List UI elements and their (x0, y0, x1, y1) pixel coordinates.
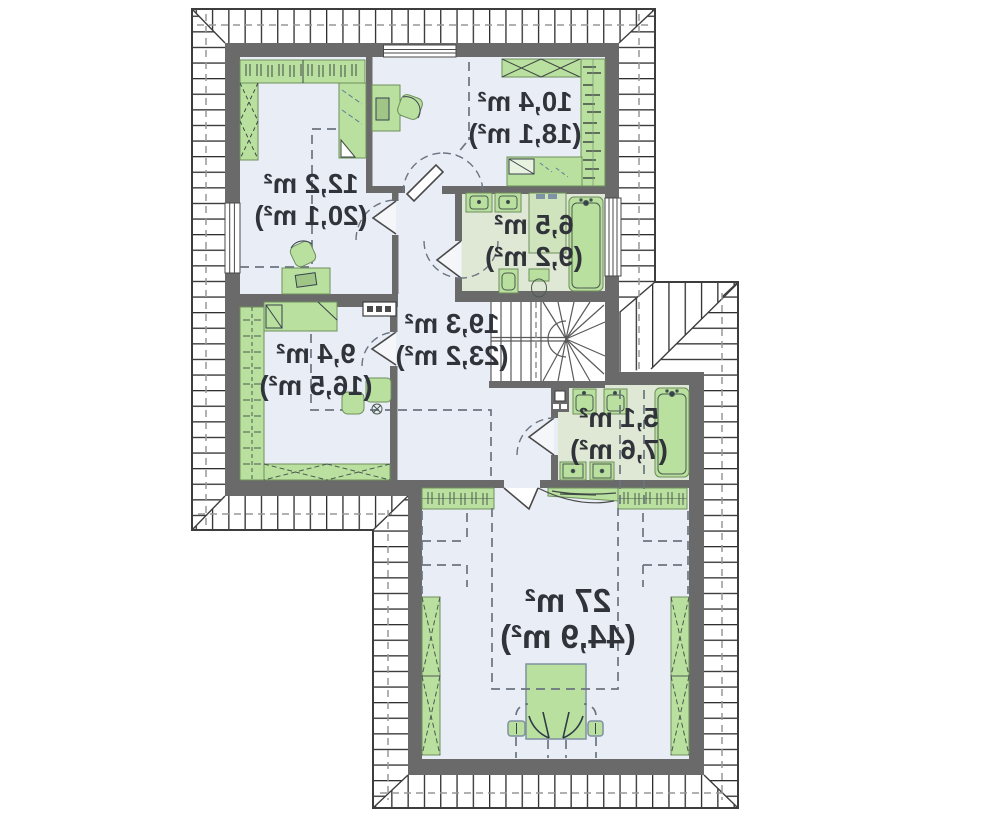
svg-text:(16,5 m²): (16,5 m²) (259, 370, 372, 401)
svg-text:6,5 m²: 6,5 m² (494, 209, 573, 240)
svg-text:(20,1 m²): (20,1 m²) (254, 200, 367, 231)
svg-text:5,1 m²: 5,1 m² (579, 402, 658, 433)
svg-text:27 m²: 27 m² (525, 582, 611, 619)
svg-text:(18,1 m²): (18,1 m²) (468, 118, 581, 149)
svg-text:12,2 m²: 12,2 m² (264, 168, 359, 199)
svg-text:(7,6 m²): (7,6 m²) (570, 434, 668, 465)
svg-text:(23,2 m²): (23,2 m²) (395, 340, 508, 371)
svg-text:19,3 m²: 19,3 m² (405, 308, 500, 339)
svg-text:(9,2 m²): (9,2 m²) (485, 241, 583, 272)
svg-text:(44,9 m²): (44,9 m²) (500, 618, 636, 655)
svg-text:10,4 m²: 10,4 m² (478, 86, 573, 117)
svg-text:9,4 m²: 9,4 m² (276, 338, 355, 369)
